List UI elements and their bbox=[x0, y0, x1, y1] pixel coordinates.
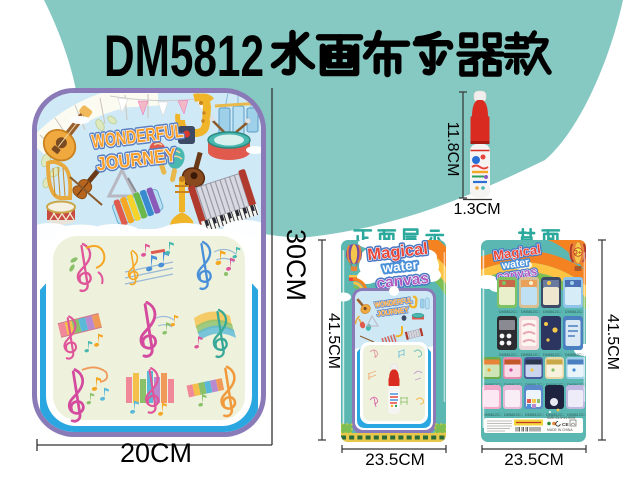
svg-text:20CM: 20CM bbox=[120, 438, 192, 468]
svg-text:DM5812C□: DM5812C□ bbox=[483, 413, 502, 417]
svg-text:DM5812C□: DM5812C□ bbox=[543, 353, 562, 357]
svg-text:41.5CM: 41.5CM bbox=[604, 314, 621, 370]
svg-text:11.8CM: 11.8CM bbox=[444, 122, 461, 177]
svg-text:23.5CM: 23.5CM bbox=[504, 450, 564, 469]
svg-text:CE: CE bbox=[562, 422, 569, 428]
svg-text:30CM: 30CM bbox=[281, 229, 311, 301]
svg-text:DM5812C□: DM5812C□ bbox=[565, 310, 584, 314]
svg-text:DM5812C□: DM5812C□ bbox=[525, 413, 544, 417]
svg-text:3+: 3+ bbox=[574, 250, 582, 257]
svg-text:DM5812C□: DM5812C□ bbox=[504, 413, 523, 417]
svg-text:DM5812C□: DM5812C□ bbox=[521, 310, 540, 314]
svg-text:DM5812C□: DM5812C□ bbox=[543, 310, 562, 314]
svg-text:DM5812: DM5812 bbox=[104, 24, 264, 89]
svg-text:DM5812C□: DM5812C□ bbox=[521, 353, 540, 357]
svg-text:1.3CM: 1.3CM bbox=[453, 201, 500, 218]
svg-text:DM5812C□: DM5812C□ bbox=[565, 353, 584, 357]
svg-text:41.5CM: 41.5CM bbox=[325, 313, 342, 369]
svg-text:DM5812C□: DM5812C□ bbox=[499, 353, 518, 357]
svg-text:23.5CM: 23.5CM bbox=[365, 450, 425, 469]
svg-text:DM5812C□: DM5812C□ bbox=[499, 310, 518, 314]
svg-text:SIZE:23.5*41.5CM: SIZE:23.5*41.5CM bbox=[547, 416, 575, 420]
svg-text:MADE IN CHINA: MADE IN CHINA bbox=[547, 428, 573, 432]
